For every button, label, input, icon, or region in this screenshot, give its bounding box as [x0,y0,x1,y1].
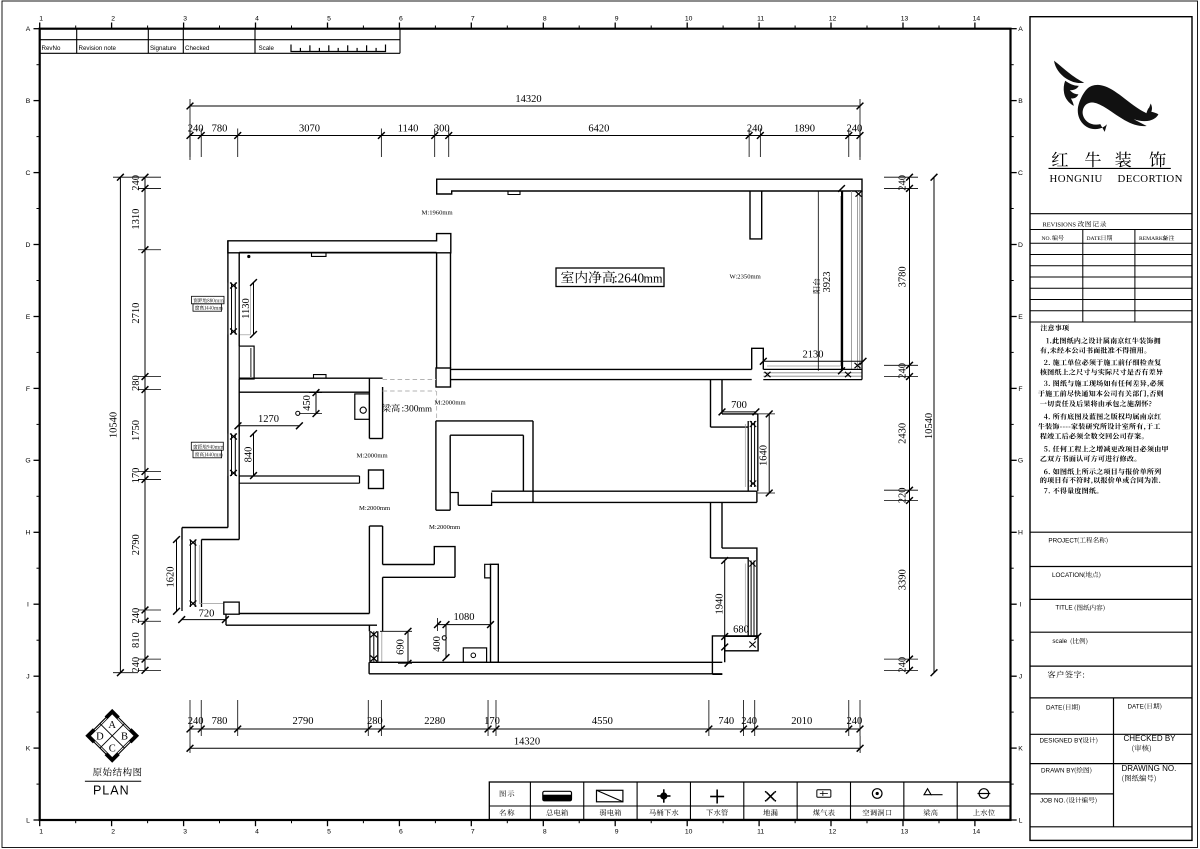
svg-text:TITLE: TITLE [1055,605,1072,612]
svg-text:14320: 14320 [515,94,541,105]
svg-text:A: A [108,720,116,731]
svg-text:DRAWING NO.: DRAWING NO. [1122,764,1177,773]
svg-text:2130: 2130 [803,350,824,361]
svg-text:3390: 3390 [898,569,909,590]
svg-text:M:2000mm: M:2000mm [359,505,391,512]
svg-text:3: 3 [183,16,187,23]
svg-text:3070: 3070 [299,124,320,135]
svg-text:Scale: Scale [259,45,275,52]
svg-text:REMARKS: REMARKS [1139,236,1166,242]
svg-text:1080: 1080 [454,612,475,623]
svg-text:14320: 14320 [514,737,540,748]
svg-text:240: 240 [898,363,909,379]
svg-text:14: 14 [973,829,981,836]
svg-text:B: B [26,98,31,105]
svg-text::300: :300 [402,404,419,415]
svg-text:1: 1 [39,829,43,836]
svg-text:F: F [26,386,30,393]
svg-text:J: J [26,674,29,681]
svg-text:810: 810 [131,632,142,648]
svg-text:400: 400 [432,636,443,652]
svg-text:7: 7 [471,16,475,23]
svg-text:E: E [26,314,31,321]
svg-text:1890: 1890 [794,124,815,135]
svg-text:C: C [1018,170,1023,177]
svg-text:10: 10 [685,829,693,836]
svg-text:NO.: NO. [1042,236,1052,242]
svg-text:2: 2 [111,829,115,836]
svg-text:2430: 2430 [898,423,909,444]
svg-text:H: H [26,530,31,537]
svg-text:Revision note: Revision note [79,45,117,52]
svg-text:L: L [26,817,30,824]
svg-text:L: L [1019,817,1023,824]
svg-text:1270: 1270 [258,414,279,425]
svg-text:9: 9 [615,16,619,23]
svg-text:780: 780 [212,716,228,727]
svg-text:K: K [1018,746,1023,753]
svg-text:G: G [25,458,30,465]
svg-text:2010: 2010 [791,716,812,727]
svg-text:240: 240 [847,716,863,727]
svg-text:Checked: Checked [185,45,210,52]
svg-text:690: 690 [396,639,407,655]
svg-text:11: 11 [757,829,764,836]
svg-text:DESIGNED BY: DESIGNED BY [1040,737,1084,744]
svg-text:2710: 2710 [131,303,142,324]
svg-text:DATE: DATE [1046,704,1062,711]
svg-text:4: 4 [255,16,259,23]
svg-text:240: 240 [741,716,757,727]
svg-text:PROJECT: PROJECT [1048,537,1078,544]
svg-text:5: 5 [327,16,331,23]
svg-text:1: 1 [39,16,43,23]
svg-text:DECORTION: DECORTION [1118,173,1183,185]
svg-text:HONGNIU: HONGNIU [1050,173,1103,185]
svg-text:170: 170 [484,716,500,727]
svg-text:E: E [1018,314,1023,321]
svg-text:3923: 3923 [822,272,833,293]
svg-text:300: 300 [434,124,450,135]
svg-text:J: J [1019,674,1022,681]
svg-text:scale: scale [1052,638,1067,645]
svg-text:A: A [26,26,31,33]
svg-text:13: 13 [901,829,909,836]
svg-text:240: 240 [747,124,763,135]
svg-text:LOCATION: LOCATION [1052,572,1084,579]
svg-text:1640: 1640 [759,445,770,466]
svg-text:K: K [26,746,31,753]
svg-text:M:2000mm: M:2000mm [357,452,389,459]
svg-text:C: C [109,744,116,755]
svg-text:1750: 1750 [131,420,142,441]
svg-text:4: 4 [255,829,259,836]
svg-text:CHECKED BY: CHECKED BY [1124,734,1177,743]
svg-text:JOB NO.: JOB NO. [1040,797,1065,804]
svg-text:F: F [1018,386,1022,393]
svg-text:D: D [26,242,31,249]
svg-text:9: 9 [615,829,619,836]
svg-text:3: 3 [183,829,187,836]
svg-text:240: 240 [847,124,863,135]
svg-text:280: 280 [131,375,142,391]
svg-text:220: 220 [898,487,909,503]
svg-text:mm: mm [418,404,432,414]
svg-text:7: 7 [471,829,475,836]
svg-text:680: 680 [733,625,749,636]
svg-text:I: I [1020,602,1022,609]
svg-text:720: 720 [199,609,215,620]
svg-text:10540: 10540 [924,413,935,439]
svg-text:REVISIONS: REVISIONS [1043,221,1077,228]
svg-text:2790: 2790 [292,716,313,727]
svg-text:10540: 10540 [109,412,120,438]
svg-text:12: 12 [829,16,837,23]
svg-text:1940: 1940 [715,594,726,615]
svg-text:M:2000mm: M:2000mm [435,400,467,407]
svg-text:M:2000mm: M:2000mm [429,524,461,531]
svg-text:170: 170 [131,468,142,484]
svg-text:RevNo: RevNo [42,45,61,52]
svg-text:DRAWN BY: DRAWN BY [1041,767,1076,774]
svg-text:12: 12 [829,829,837,836]
svg-text:DATE: DATE [1128,703,1144,710]
svg-text:A: A [1018,26,1023,33]
svg-text:6420: 6420 [588,124,609,135]
svg-text:450: 450 [302,395,313,411]
svg-text:13: 13 [901,16,909,23]
svg-text:11: 11 [757,16,764,23]
svg-text:2790: 2790 [131,534,142,555]
svg-text:240: 240 [898,657,909,673]
svg-text:I: I [27,602,29,609]
svg-text:3780: 3780 [898,266,909,287]
svg-text:280: 280 [367,716,383,727]
svg-text:780: 780 [212,124,228,135]
svg-text:1310: 1310 [131,209,142,230]
svg-text:H: H [1018,530,1023,537]
svg-text:1620: 1620 [166,567,177,588]
svg-text:10: 10 [685,16,693,23]
svg-text:D: D [96,732,104,743]
svg-text:740: 740 [718,716,734,727]
svg-text:5: 5 [327,829,331,836]
svg-text:14: 14 [973,16,981,23]
svg-text:mm: mm [644,271,663,285]
svg-text:8: 8 [543,16,547,23]
svg-text:240: 240 [188,716,204,727]
svg-text:B: B [1018,98,1023,105]
svg-text:700: 700 [731,400,747,411]
svg-text:840: 840 [244,447,255,463]
svg-text:4550: 4550 [592,716,613,727]
svg-text:B: B [121,732,128,743]
svg-text:6: 6 [399,829,403,836]
svg-text:PLAN: PLAN [93,784,130,798]
svg-text:C: C [26,170,31,177]
svg-text:Signature: Signature [150,45,177,52]
svg-text:D: D [1018,242,1023,249]
svg-text:W:2350mm: W:2350mm [730,274,762,281]
svg-text:240: 240 [131,608,142,624]
svg-text:DATE: DATE [1087,236,1102,242]
svg-text:240: 240 [131,657,142,673]
svg-text:1140: 1140 [398,124,419,135]
svg-text:240: 240 [898,175,909,191]
svg-text:M:1960mm: M:1960mm [422,210,454,217]
svg-text:G: G [1018,458,1023,465]
svg-text:6: 6 [399,16,403,23]
svg-text:240: 240 [188,124,204,135]
svg-text:2: 2 [111,16,115,23]
svg-text:8: 8 [543,829,547,836]
svg-text::2640: :2640 [614,270,644,285]
svg-text:2280: 2280 [424,716,445,727]
svg-text:1130: 1130 [241,298,252,319]
